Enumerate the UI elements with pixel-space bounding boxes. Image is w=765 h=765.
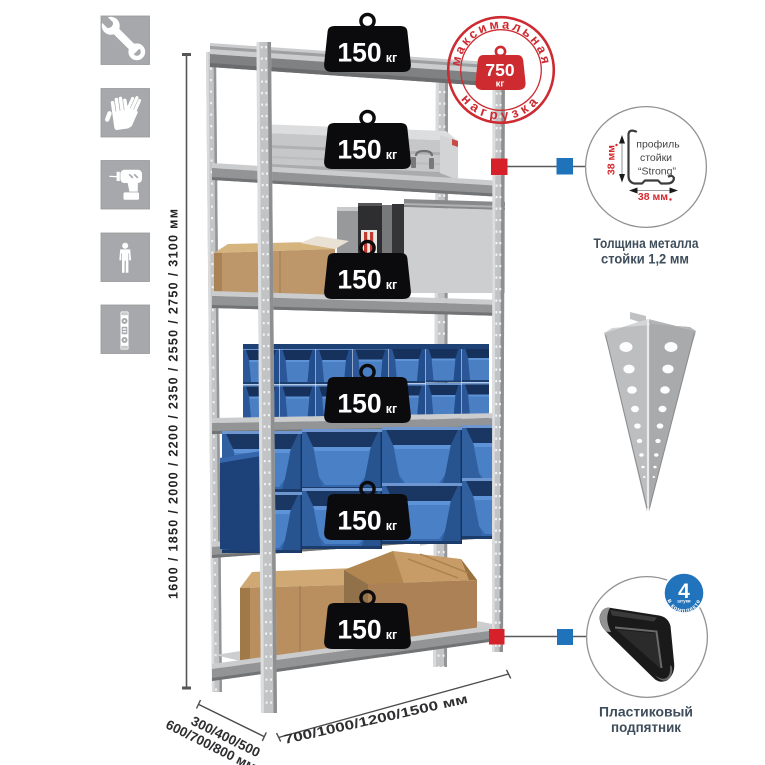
svg-text:Пластиковый: Пластиковый xyxy=(599,704,693,720)
svg-text:“Strong”: “Strong” xyxy=(638,166,676,178)
svg-text:38 мм: 38 мм xyxy=(638,191,668,203)
svg-text:750: 750 xyxy=(485,60,514,80)
svg-text:кг: кг xyxy=(496,79,505,90)
svg-text:стойки: стойки xyxy=(640,152,672,164)
svg-text:38 мм: 38 мм xyxy=(606,145,618,175)
svg-text:подпятник: подпятник xyxy=(611,719,682,735)
svg-text:1600 / 1850 / 2000 / 2200 / 23: 1600 / 1850 / 2000 / 2200 / 2350 / 2550 … xyxy=(167,209,181,599)
svg-text:стойки 1,2 мм: стойки 1,2 мм xyxy=(601,252,689,267)
svg-text:штуки: штуки xyxy=(677,599,691,604)
svg-text:Толщина металла: Толщина металла xyxy=(594,236,699,251)
svg-text:профиль: профиль xyxy=(636,139,680,151)
